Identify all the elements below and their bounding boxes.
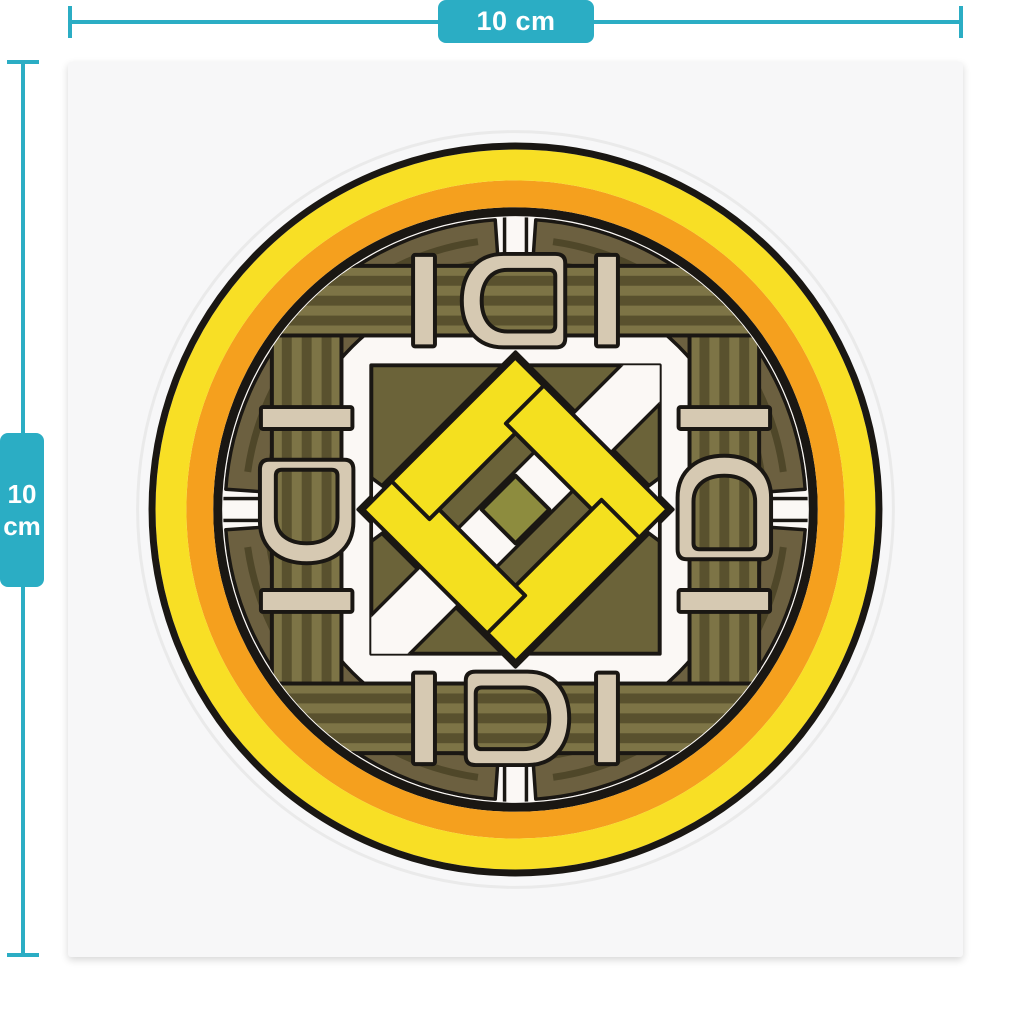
- height-dimension-value: 10: [8, 478, 37, 511]
- height-dimension-unit: cm: [3, 510, 41, 543]
- sticker: [68, 62, 963, 957]
- product-preview: 10 cm 10 cm: [0, 0, 1024, 1024]
- width-dimension-badge: 10 cm: [438, 0, 594, 43]
- top-ruler-endcap-left: [68, 6, 72, 38]
- top-ruler-endcap-right: [959, 6, 963, 38]
- height-dimension-badge: 10 cm: [0, 433, 44, 587]
- left-ruler-endcap-top: [7, 60, 39, 64]
- width-dimension-label: 10 cm: [476, 6, 555, 37]
- sticker-emblem: [68, 62, 963, 957]
- center-knot-panel: [327, 321, 704, 698]
- left-ruler-endcap-bottom: [7, 953, 39, 957]
